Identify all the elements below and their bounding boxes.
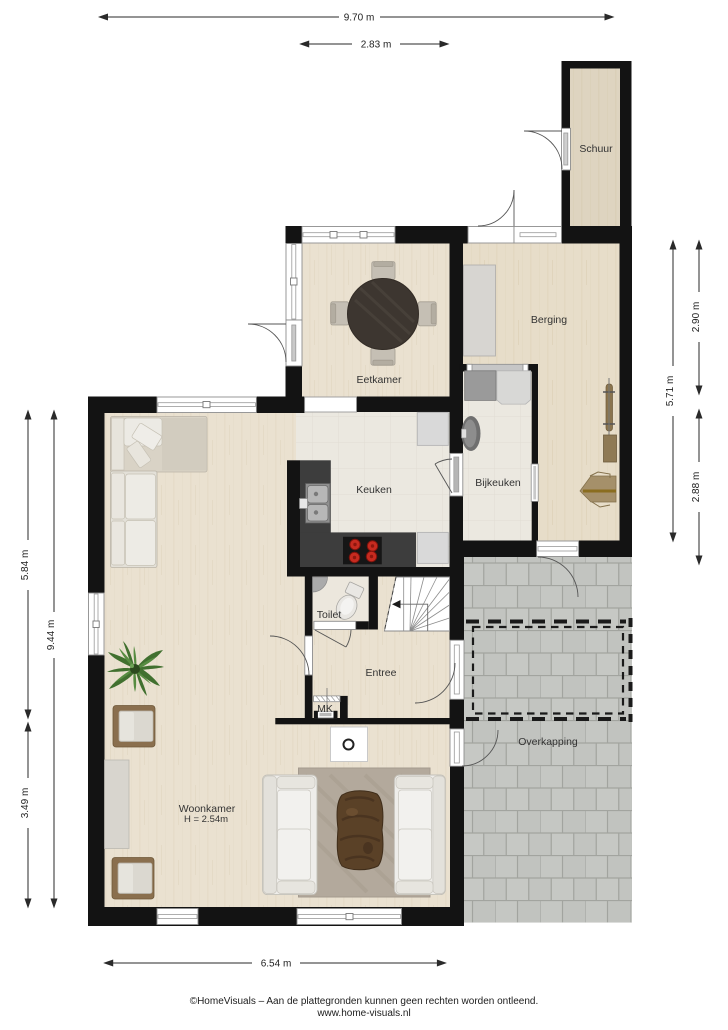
- svg-text:6.54 m: 6.54 m: [261, 959, 292, 970]
- svg-text:2.83 m: 2.83 m: [361, 40, 392, 51]
- svg-text:Berging: Berging: [531, 314, 567, 326]
- svg-text:Toilet: Toilet: [317, 609, 342, 621]
- svg-text:2.90 m: 2.90 m: [691, 302, 702, 333]
- svg-text:Eetkamer: Eetkamer: [357, 374, 402, 386]
- svg-text:MK: MK: [317, 703, 333, 715]
- svg-text:©HomeVisuals – Aan de plattegr: ©HomeVisuals – Aan de plattegronden kunn…: [190, 996, 539, 1007]
- svg-text:5.84 m: 5.84 m: [20, 550, 31, 581]
- svg-text:3.49 m: 3.49 m: [20, 788, 31, 819]
- svg-text:5.71 m: 5.71 m: [665, 376, 676, 407]
- svg-text:2.88 m: 2.88 m: [691, 472, 702, 503]
- svg-text:Bijkeuken: Bijkeuken: [475, 477, 521, 489]
- svg-text:Entree: Entree: [366, 667, 397, 679]
- svg-text:Keuken: Keuken: [356, 484, 392, 496]
- svg-text:9.70 m: 9.70 m: [344, 13, 375, 24]
- svg-text:www.home-visuals.nl: www.home-visuals.nl: [316, 1008, 410, 1019]
- svg-text:Schuur: Schuur: [579, 143, 613, 155]
- svg-text:Overkapping: Overkapping: [518, 736, 578, 748]
- svg-text:9.44 m: 9.44 m: [46, 620, 57, 651]
- svg-text:H = 2.54m: H = 2.54m: [184, 814, 228, 825]
